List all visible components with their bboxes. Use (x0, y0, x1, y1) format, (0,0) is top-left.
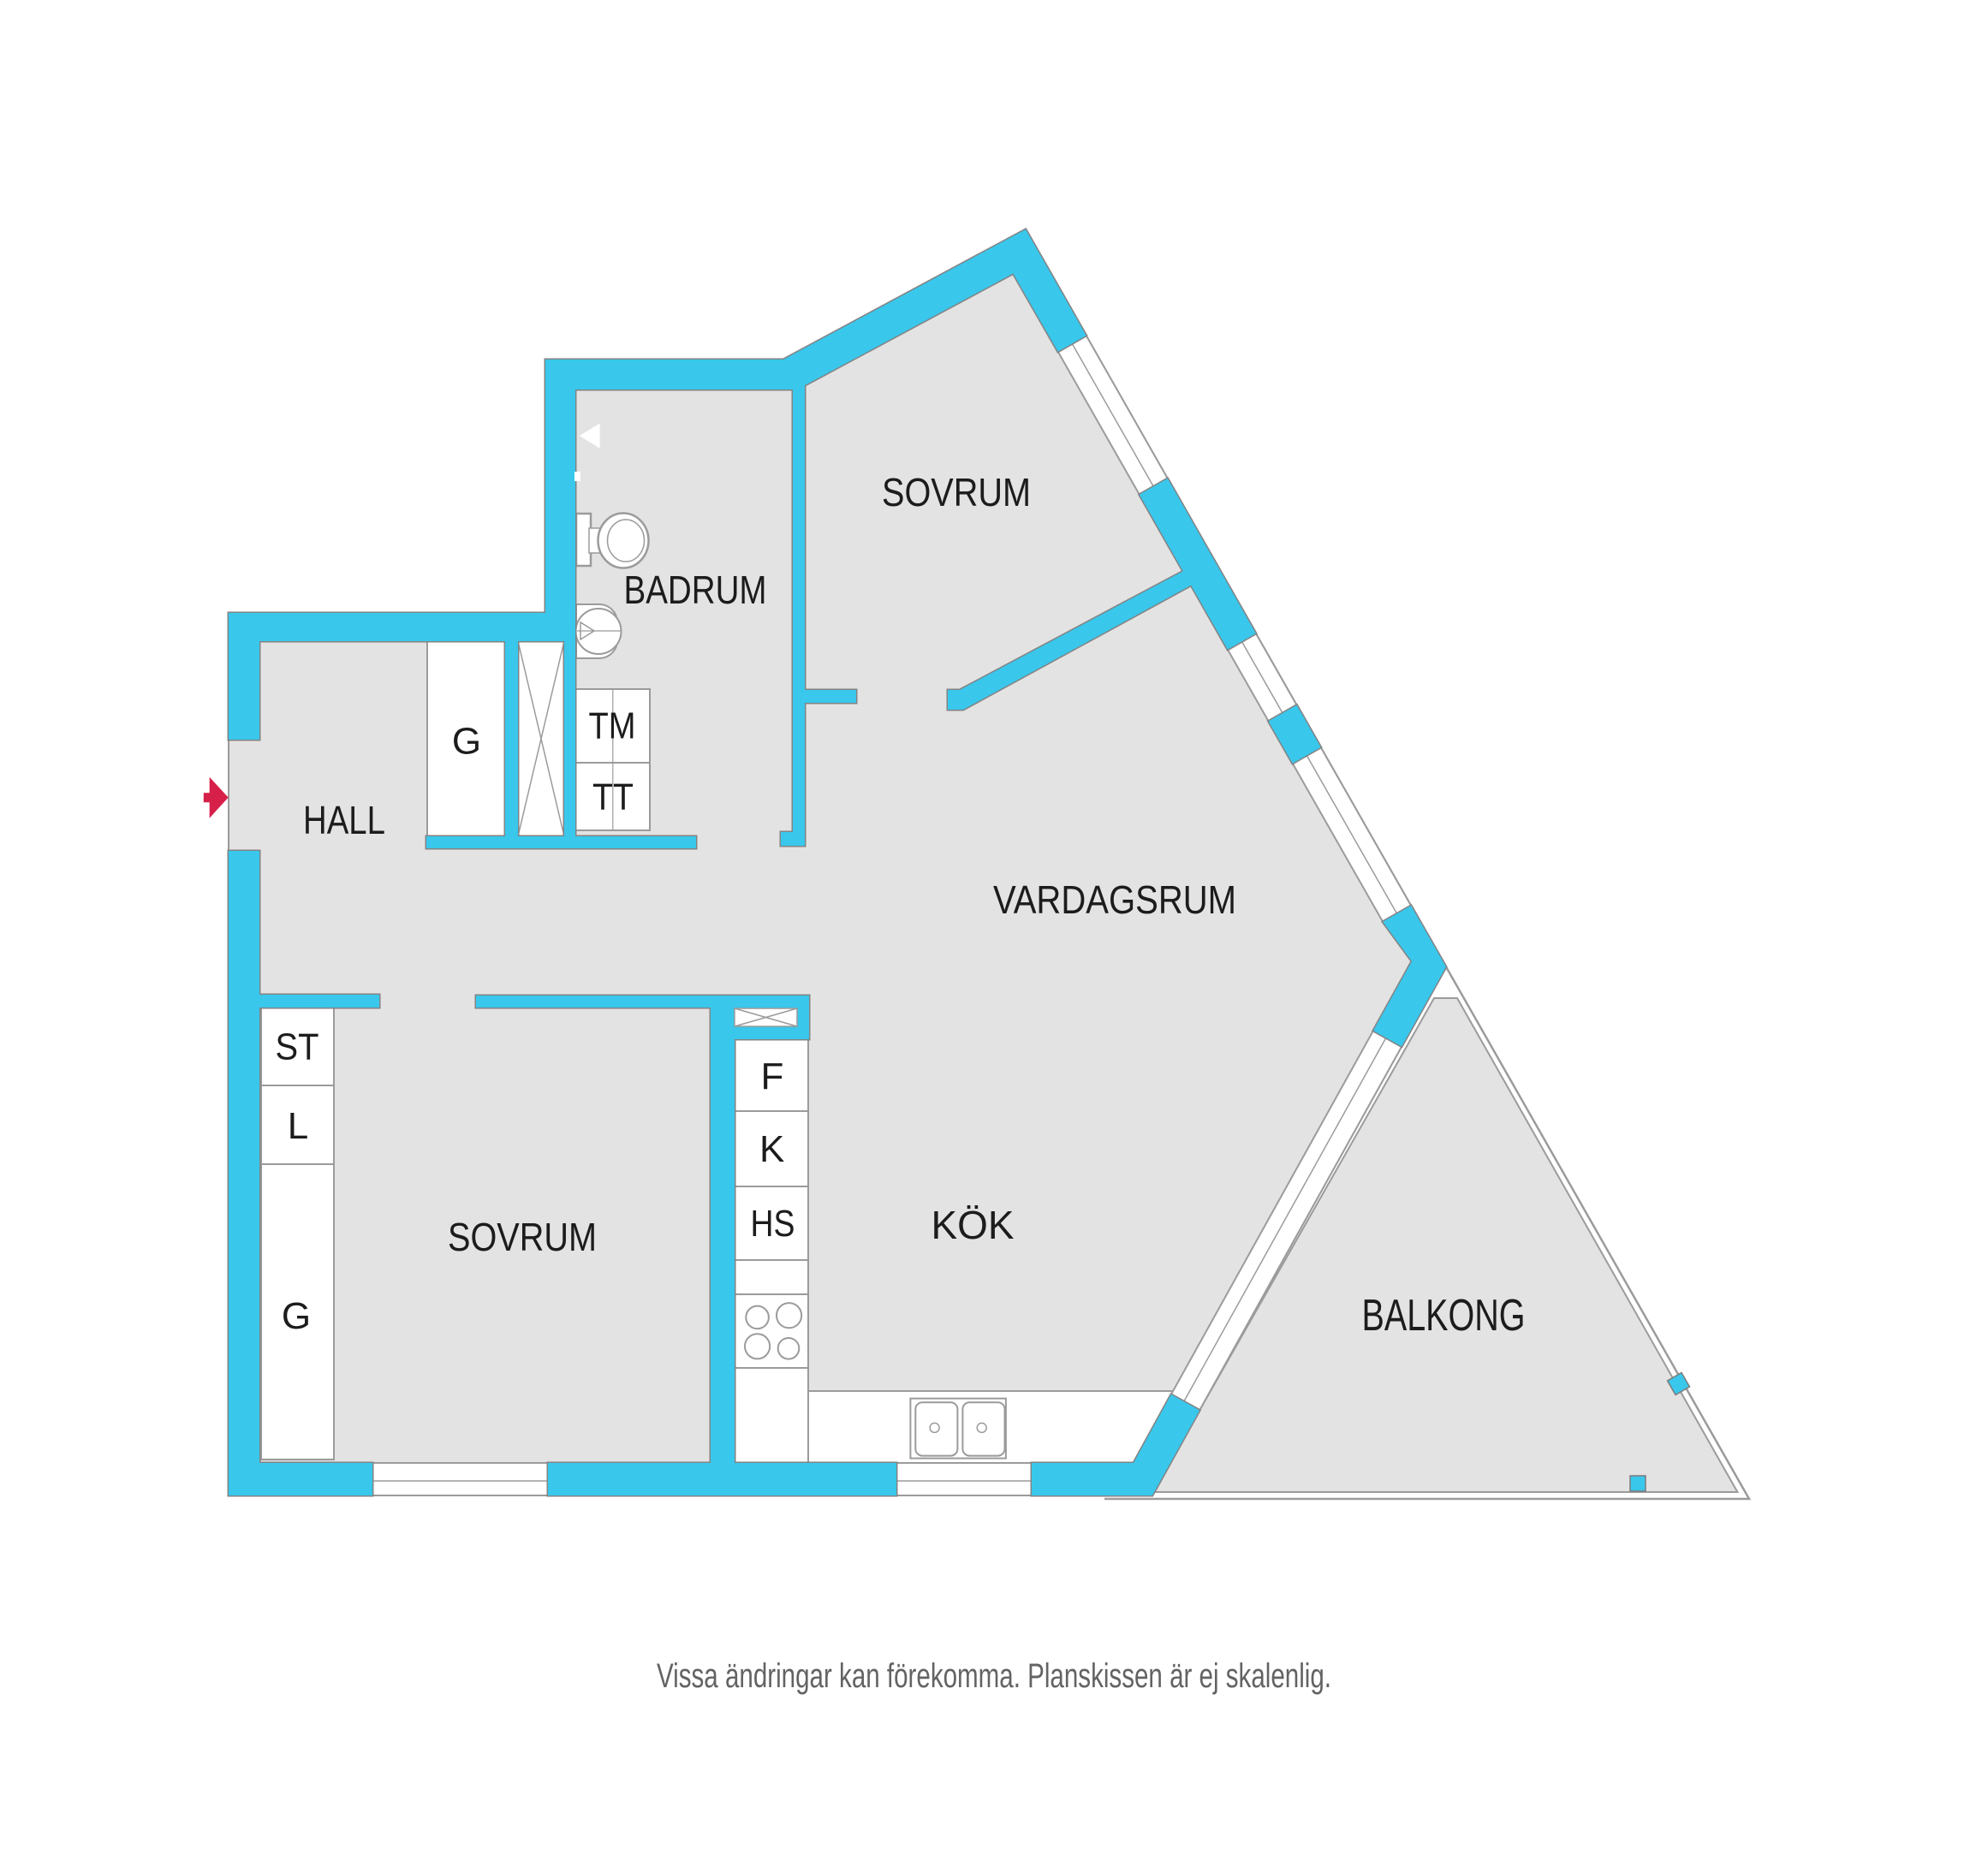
svg-text:TM: TM (589, 705, 636, 747)
svg-text:HS: HS (751, 1203, 795, 1245)
svg-text:TT: TT (592, 776, 634, 818)
svg-text:Vissa ändringar kan förekomma.: Vissa ändringar kan förekomma. Planskiss… (657, 1657, 1331, 1695)
svg-text:BADRUM: BADRUM (624, 568, 767, 612)
svg-text:F: F (761, 1055, 784, 1097)
svg-text:SOVRUM: SOVRUM (448, 1215, 597, 1259)
svg-text:KÖK: KÖK (932, 1203, 1015, 1247)
svg-text:SOVRUM: SOVRUM (882, 470, 1031, 514)
svg-text:G: G (452, 721, 481, 763)
svg-text:K: K (759, 1128, 784, 1170)
svg-text:ST: ST (276, 1026, 319, 1068)
svg-text:BALKONG: BALKONG (1362, 1291, 1526, 1341)
svg-text:HALL: HALL (303, 798, 385, 842)
svg-text:VARDAGSRUM: VARDAGSRUM (993, 877, 1236, 922)
svg-text:L: L (288, 1105, 308, 1147)
svg-text:G: G (282, 1295, 311, 1337)
